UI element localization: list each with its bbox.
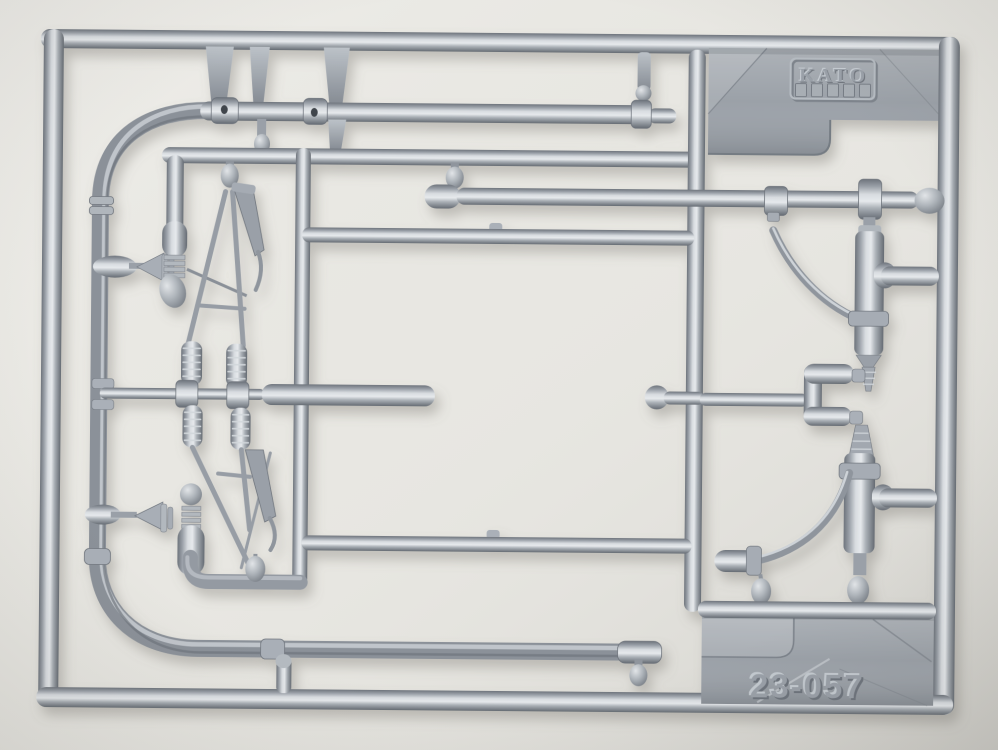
photo-of-sprue: KATO KATO KATO 23-057 <box>0 0 998 750</box>
sprue-photo-canvas: KATO KATO KATO 23-057 <box>0 0 998 750</box>
vignette <box>0 0 998 750</box>
